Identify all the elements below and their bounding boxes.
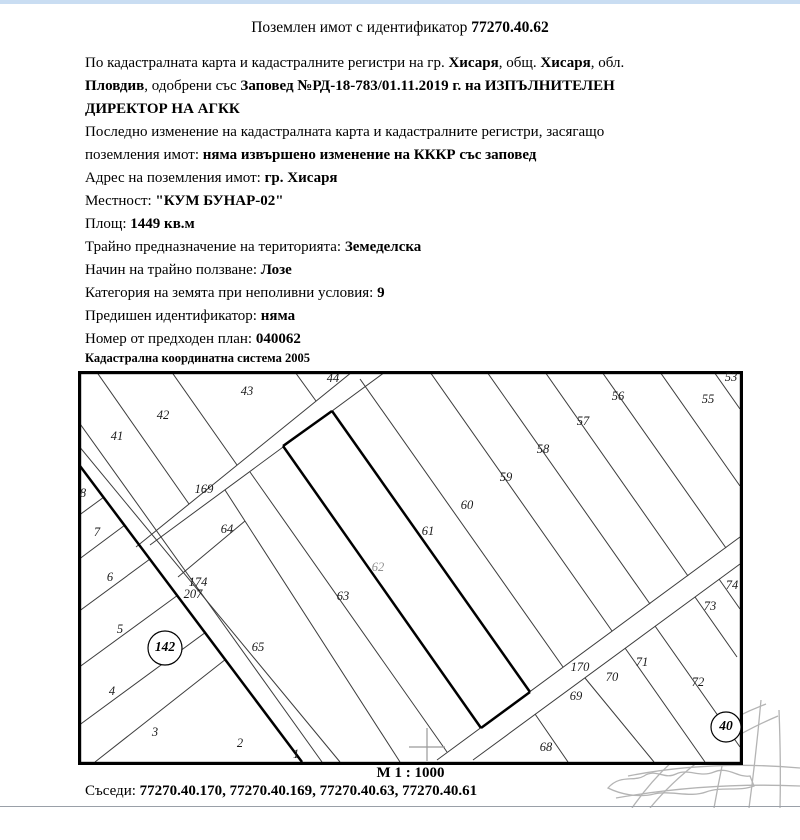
document-paragraph: Предишен идентификатор: няма [85,305,679,328]
parcel-label-62: 62 [372,560,385,574]
property-identifier: 77270.40.62 [471,19,549,36]
parcel-label-60: 60 [461,498,474,512]
document-paragraph: Начин на трайно ползване: Лозе [85,259,679,282]
parcel-label-8: 8 [80,486,87,500]
parcel-label-70: 70 [606,670,619,684]
parcel-label-43: 43 [241,384,254,398]
parcel-label-3: 3 [151,725,158,739]
document-paragraph: Местност: "КУМ БУНАР-02" [85,190,679,213]
top-accent-bar [0,0,800,4]
neighbors-label: Съседи: [85,783,140,799]
parcel-label-71: 71 [636,655,649,669]
document-paragraph: Трайно предназначение на територията: Зе… [85,236,679,259]
parcel-label-6: 6 [107,570,114,584]
page-title-text: Поземлен имот с идентификатор [251,19,471,36]
parcel-label-69: 69 [570,689,583,703]
massif-number-142: 142 [155,639,176,654]
document-paragraphs: По кадастралната карта и кадастралните р… [85,52,679,351]
map-scale-label: М 1 : 1000 [78,765,743,782]
document-paragraph: Номер от предходен план: 040062 [85,328,679,351]
parcel-label-61: 61 [422,524,435,538]
parcel-label-56: 56 [612,389,625,403]
document-paragraph: Последно изменение на кадастралната карт… [85,121,679,167]
neighbors-values: 77270.40.170, 77270.40.169, 77270.40.63,… [140,783,478,799]
footer-divider [0,806,800,807]
parcel-label-170: 170 [571,660,591,674]
parcel-label-44: 44 [327,371,340,385]
parcel-label-58: 58 [537,442,550,456]
parcel-label-68: 68 [540,740,553,754]
parcel-label-59: 59 [500,470,513,484]
parcel-label-1: 1 [293,747,299,761]
cadastral-map: 4142434453555657585960616263646516917420… [78,371,743,770]
parcel-label-7: 7 [94,525,101,539]
parcel-label-4: 4 [109,684,115,698]
parcel-label-64: 64 [221,522,234,536]
coordinate-system-label: Кадастрална координатна система 2005 [85,351,310,366]
document-paragraph: Категория на земята при неполивни услови… [85,282,679,305]
parcel-label-63: 63 [337,589,350,603]
parcel-label-41: 41 [111,429,124,443]
parcel-label-2: 2 [237,736,243,750]
parcel-label-73: 73 [704,599,717,613]
parcel-label-207: 207 [184,587,204,601]
document-paragraph: Площ: 1449 кв.м [85,213,679,236]
parcel-label-5: 5 [117,622,123,636]
parcel-label-42: 42 [157,408,170,422]
parcel-label-72: 72 [692,675,705,689]
page-title: Поземлен имот с идентификатор 77270.40.6… [0,19,800,37]
parcel-label-74: 74 [726,578,739,592]
parcel-label-53: 53 [725,371,738,384]
document-paragraph: Адрес на поземления имот: гр. Хисаря [85,167,679,190]
massif-number-40: 40 [718,718,733,733]
parcel-label-65: 65 [252,640,265,654]
parcel-label-55: 55 [702,392,715,406]
parcel-label-169: 169 [195,482,215,496]
neighbors-line: Съседи: 77270.40.170, 77270.40.169, 7727… [85,783,477,800]
cadastral-document-page: { "page": { "title_prefix": "Поземлен им… [0,0,800,840]
parcel-label-57: 57 [577,414,590,428]
document-paragraph: По кадастралната карта и кадастралните р… [85,52,679,121]
